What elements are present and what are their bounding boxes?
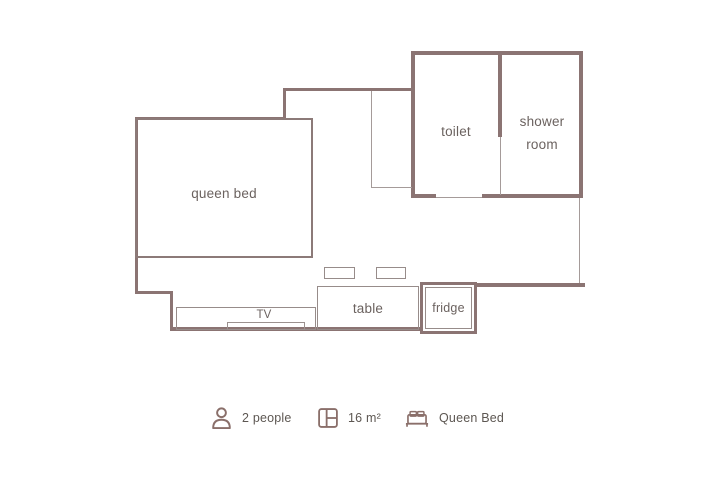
stool-left-outline	[324, 267, 355, 279]
bed-icon	[405, 409, 429, 428]
wall-step-vertical	[170, 291, 173, 331]
legend-capacity-label: 2 people	[242, 411, 292, 425]
table-label: table	[318, 301, 418, 317]
toilet-label: toilet	[416, 124, 496, 140]
legend-area: 16 m²	[318, 403, 381, 433]
wall-bathroom-bottom-right-segment	[482, 194, 583, 198]
wall-bottom-right	[475, 283, 585, 287]
legend-bed-type: Queen Bed	[405, 403, 504, 433]
toilet-shower-divider-thin-line	[500, 137, 501, 195]
legend-area-label: 16 m²	[348, 411, 381, 425]
wall-corridor-jog-vertical	[283, 88, 286, 120]
closet-bottom-line	[371, 187, 412, 188]
wall-bathroom-top	[411, 51, 583, 55]
fridge-label: fridge	[421, 300, 476, 316]
wall-toilet-shower-divider	[498, 51, 502, 137]
wall-bathroom-right	[579, 51, 583, 198]
right-boundary-thin-line	[579, 198, 580, 283]
bathroom-door-threshold-line	[436, 197, 482, 198]
floor-plan-canvas: queen bed toilet shower room TV table fr…	[0, 0, 720, 480]
floorplan-icon	[318, 408, 338, 428]
legend-bed-type-label: Queen Bed	[439, 411, 504, 425]
wall-step-horizontal	[135, 291, 173, 294]
shower-room-label: shower room	[511, 110, 573, 156]
wall-bathroom-bottom-left-segment	[411, 194, 436, 198]
tv-set-outline	[227, 322, 305, 330]
wall-corridor-top	[283, 88, 415, 91]
stool-right-outline	[376, 267, 406, 279]
queen-bed-label: queen bed	[154, 186, 294, 202]
tv-label: TV	[234, 307, 294, 323]
person-icon	[211, 405, 232, 431]
legend-capacity: 2 people	[211, 403, 292, 433]
closet-left-line	[371, 91, 372, 188]
wall-bathroom-left	[411, 51, 415, 198]
